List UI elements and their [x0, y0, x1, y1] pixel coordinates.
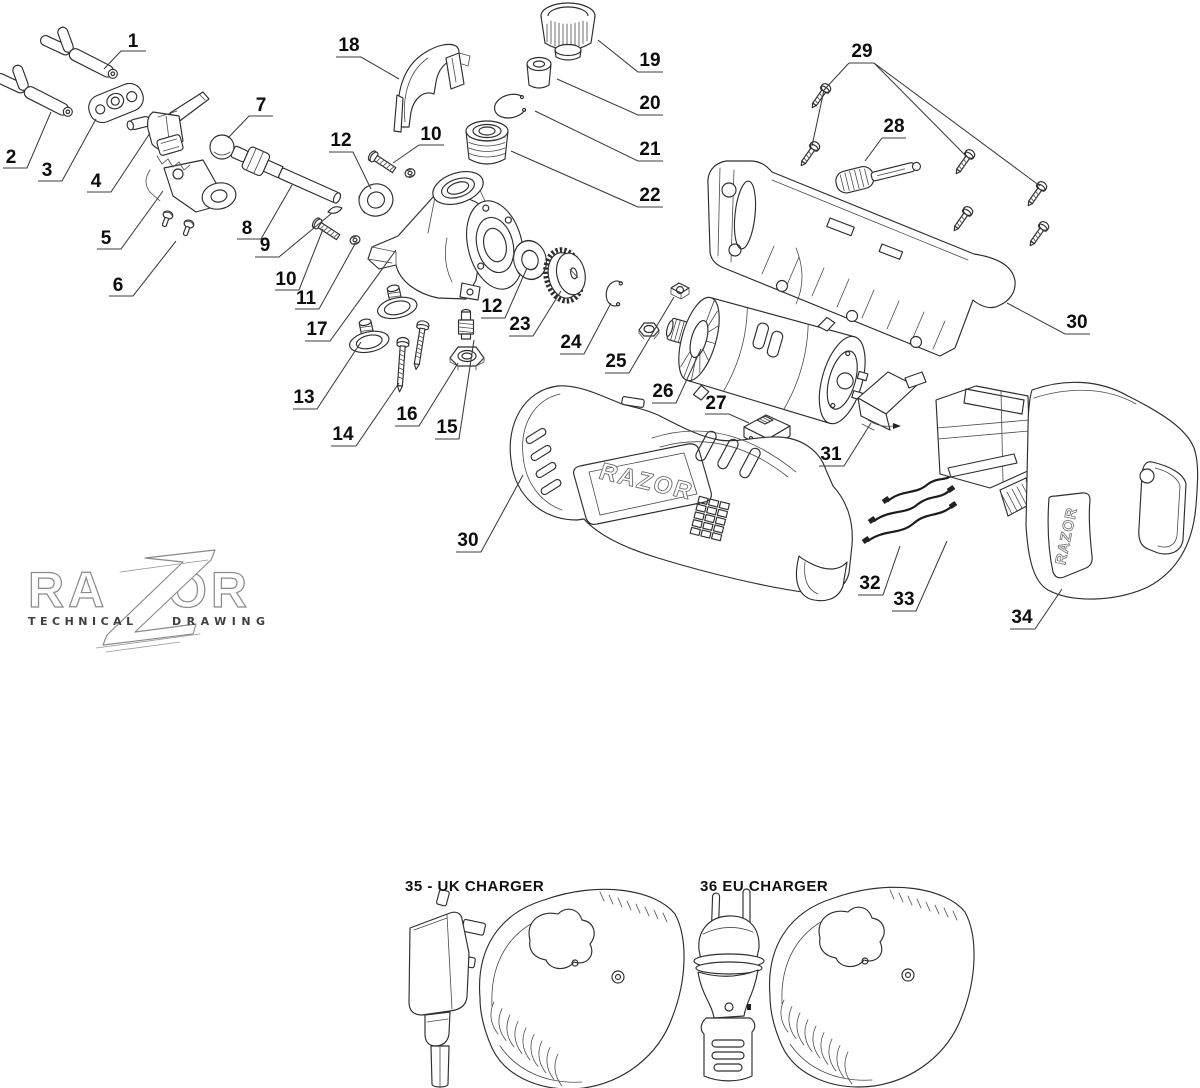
part-callout-8: 8 [242, 218, 253, 240]
part-callout-17: 17 [306, 319, 327, 341]
logo-word-drawing: DRAWING [172, 615, 271, 628]
part-7-steel-ball [210, 135, 234, 159]
part-callout-31: 31 [820, 444, 841, 466]
part-callout-19: 19 [639, 50, 660, 72]
part-35-uk-plug [409, 889, 486, 1087]
part-callout-22: 22 [639, 185, 660, 207]
leader-line-27 [705, 414, 749, 423]
part-callout-7: 7 [256, 95, 267, 117]
leader-line-7 [228, 116, 273, 138]
part-24-circlip [604, 279, 623, 306]
leader-line-18 [336, 57, 399, 79]
razor-logo: RA OR TECHNICAL DRAWING [28, 550, 271, 652]
part-callout-3: 3 [42, 160, 53, 182]
part-callout-34: 34 [1011, 607, 1032, 629]
part-34-battery-pack: RAZOR [936, 382, 1198, 599]
leader-line-29 [874, 63, 966, 156]
part-18-guard [394, 44, 470, 132]
part-callout-28: 28 [883, 116, 904, 138]
part-callout-29: 29 [851, 41, 872, 63]
part-callout-6: 6 [113, 275, 124, 297]
part-callout-26: 26 [652, 381, 673, 403]
part-19-chuck-cap [541, 3, 595, 60]
part-10-screw-a [367, 150, 397, 175]
part-28-direction-slider [834, 153, 923, 195]
part-23-drive-gear [541, 246, 590, 305]
part-10-screw-b [311, 217, 341, 242]
part-5-lock-lever [146, 156, 238, 212]
eu-charger-caption: 36 EU CHARGER [700, 878, 828, 895]
part-14-screw-a [394, 337, 410, 392]
part-callout-2: 2 [6, 147, 17, 169]
uk-charger-caption: 35 - UK CHARGER [405, 878, 544, 895]
leader-line-10 [393, 145, 444, 163]
part-12-bearing-a [355, 180, 397, 221]
part-14-screw-b [410, 320, 430, 370]
part-30-housing-lower: RAZOR [510, 386, 852, 601]
part-16-hex-nut [450, 347, 484, 370]
part-callout-10: 10 [275, 269, 296, 291]
leader-line-12 [329, 152, 371, 189]
part-17-gear-head [368, 166, 532, 300]
part-callout-5: 5 [101, 228, 112, 250]
part-callout-18: 18 [338, 35, 359, 57]
part-13-press-plate-b [345, 315, 391, 356]
part-callout-30: 30 [1066, 312, 1087, 334]
part-11-nut-b [349, 234, 361, 245]
leader-line-28 [865, 138, 906, 161]
logo-text-left: RA [28, 562, 108, 618]
part-callout-30: 30 [457, 530, 478, 552]
part-callout-24: 24 [560, 332, 581, 354]
part-callout-12: 12 [330, 130, 351, 152]
part-36-eu-plug [694, 889, 764, 1081]
part-20-collet-sleeve [527, 58, 551, 89]
part-callout-9: 9 [260, 235, 271, 257]
part-22-clamp-collar [466, 121, 508, 164]
part-callout-21: 21 [639, 139, 660, 161]
logo-word-technical: TECHNICAL [28, 615, 138, 628]
exploded-diagram-canvas: RAZOR [0, 0, 1200, 1088]
part-callout-27: 27 [705, 393, 726, 415]
part-6-screws [159, 210, 195, 237]
part-callout-4: 4 [91, 171, 102, 193]
part-1-shift-fork [39, 26, 117, 79]
part-2-shift-fork [0, 64, 72, 117]
part-11-nut-a [404, 167, 416, 178]
part-35-uk-charger-base [480, 889, 685, 1088]
part-callout-12: 12 [481, 296, 502, 318]
part-callout-15: 15 [436, 417, 457, 439]
part-callout-14: 14 [332, 424, 353, 446]
part-8-spindle-shaft [228, 140, 345, 210]
part-36-eu-charger-base [770, 887, 975, 1087]
part-callout-25: 25 [605, 351, 626, 373]
technical-drawing: RAZOR [0, 0, 1200, 1088]
part-callout-11: 11 [296, 288, 316, 310]
part-callout-16: 16 [396, 404, 417, 426]
part-31-terminal-bracket [858, 372, 926, 430]
part-callout-20: 20 [639, 93, 660, 115]
part-15-grub-screw [459, 310, 474, 340]
part-32-33-wires [862, 469, 959, 544]
part-9-key [328, 207, 342, 214]
part-callout-13: 13 [293, 387, 314, 409]
part-callout-23: 23 [509, 314, 530, 336]
part-callout-33: 33 [893, 589, 914, 611]
part-callout-32: 32 [859, 573, 880, 595]
part-callout-1: 1 [128, 31, 139, 53]
part-21-snap-ring [492, 91, 528, 121]
part-callout-10: 10 [420, 124, 441, 146]
